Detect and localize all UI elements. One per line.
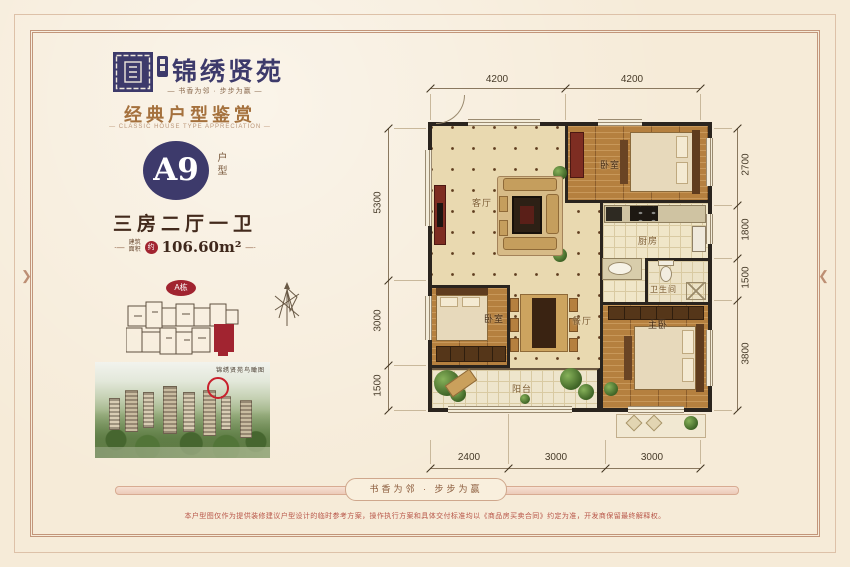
pillow [440,297,458,307]
outer-frame [14,14,836,553]
chair [569,298,578,312]
brand-tagline: — 书香为邻 · 步步为赢 — [140,86,290,96]
window [598,119,642,126]
dim-left-2: 3000 [373,291,384,351]
pillow [676,136,688,158]
room-label-living: 客厅 [472,196,492,209]
fridge [692,226,706,252]
window [706,214,713,244]
window [425,150,432,226]
bed-headboard [436,288,488,295]
sofa [546,194,559,234]
area-label: 建筑 面积 [129,240,141,254]
entry-door-arc [436,95,465,124]
dim-right-1: 2700 [741,135,752,195]
chevron-left-icon: ❮ [818,268,829,284]
area-label-line1: 建筑 [129,240,141,247]
area-deco-right: —· [245,243,256,252]
bed-headboard [696,324,704,392]
tower [125,390,138,432]
toilet [660,266,672,282]
room-label-bedroom-left: 卧室 [484,312,504,325]
window [628,406,684,413]
aerial-caption: 锦绣贤苑鸟瞰图 [216,365,265,374]
area-value: 106.60m² [162,238,242,256]
tower [143,392,154,428]
plant [578,384,594,400]
unit-code-badge: A9 [143,141,209,200]
dim-bottom-2: 3000 [526,452,586,463]
room-label-balcony: 阳台 [512,382,532,395]
chair [510,298,519,312]
chevron-right-icon: ❯ [21,268,32,284]
room-label-kitchen: 厨房 [638,234,658,247]
table-runner [532,298,556,348]
area-deco-left: ·— [114,243,125,252]
pillow [682,330,694,354]
dim-line-bottom [430,468,700,469]
dim-line-left [388,128,389,410]
sofa [503,237,557,250]
window [425,296,432,340]
dim-left-1: 5300 [373,173,384,233]
tower [183,392,195,432]
dim-top-2: 4200 [602,74,662,85]
sofa [503,178,557,191]
tv [437,203,443,227]
dim-left-3: 1500 [373,356,384,416]
tower [109,398,120,430]
dim-bottom-3: 3000 [622,452,682,463]
unit-code-label: 户型 [213,152,228,178]
tower [163,386,177,434]
brand-name: 锦绣贤苑 [172,52,284,88]
window [706,138,713,186]
plant [520,394,530,404]
armchair [499,196,508,212]
poster-page: ❯ ❮ 锦绣贤苑 — 书香为邻 · 步步为赢 — 经典户型鉴赏 — CLASSI… [0,0,850,567]
tower [221,396,231,430]
unit-rooms-summary: 三房二厅一卫 [100,209,270,236]
room-label-bathroom: 卫生间 [650,284,677,295]
bed-bench [624,336,632,380]
sink [608,262,632,275]
pillow [676,162,688,184]
area-label-line2: 面积 [129,247,141,254]
bed-headboard [692,130,700,194]
building-badge: A栋 [166,280,196,296]
footer-disclaimer: 本户型图仅作为提供装修建议户型设计的临时参考方案，操作执行方案和具体交付标准均以… [100,511,750,521]
dim-line-right [737,128,738,410]
window [448,406,572,413]
chair [510,318,519,332]
pillow [462,297,480,307]
highlighted-unit [214,324,234,352]
armchair [499,220,508,236]
chair [510,338,519,352]
dim-right-4: 3800 [741,324,752,384]
tower [240,400,252,438]
kitchen-appliance [606,207,622,221]
dim-bottom-1: 2400 [439,452,499,463]
plant [684,416,698,430]
road [95,447,270,458]
unit-area-row: ·— 建筑 面积 约 106.60m² —· [100,238,270,256]
room-label-dining: 餐厅 [572,314,592,327]
room-label-bedroom-top: 卧室 [600,158,620,171]
bed-bench [620,140,628,184]
room-label-master: 主卧 [648,318,668,331]
dim-right-3: 1500 [741,248,752,308]
pillow [682,358,694,382]
highlight-ring [207,377,229,399]
keyplan-drawing [126,298,242,360]
window [706,330,713,386]
wardrobe [436,346,506,362]
window [468,119,540,126]
plant [604,382,618,396]
aerial-photo: 锦绣贤苑鸟瞰图 [95,362,270,458]
footer-ribbon-text: 书香为邻 · 步步为赢 [345,478,507,501]
shower [686,282,706,300]
stove [630,206,658,221]
dim-top-1: 4200 [467,74,527,85]
section-subtitle: — CLASSIC HOUSE TYPE APPRECIATION — [102,124,278,130]
table-decor [520,206,534,224]
chair [569,338,578,352]
brand-submark-icon [157,56,168,77]
area-approx-badge: 约 [145,241,158,254]
dresser [570,132,584,178]
compass-icon [270,280,304,330]
